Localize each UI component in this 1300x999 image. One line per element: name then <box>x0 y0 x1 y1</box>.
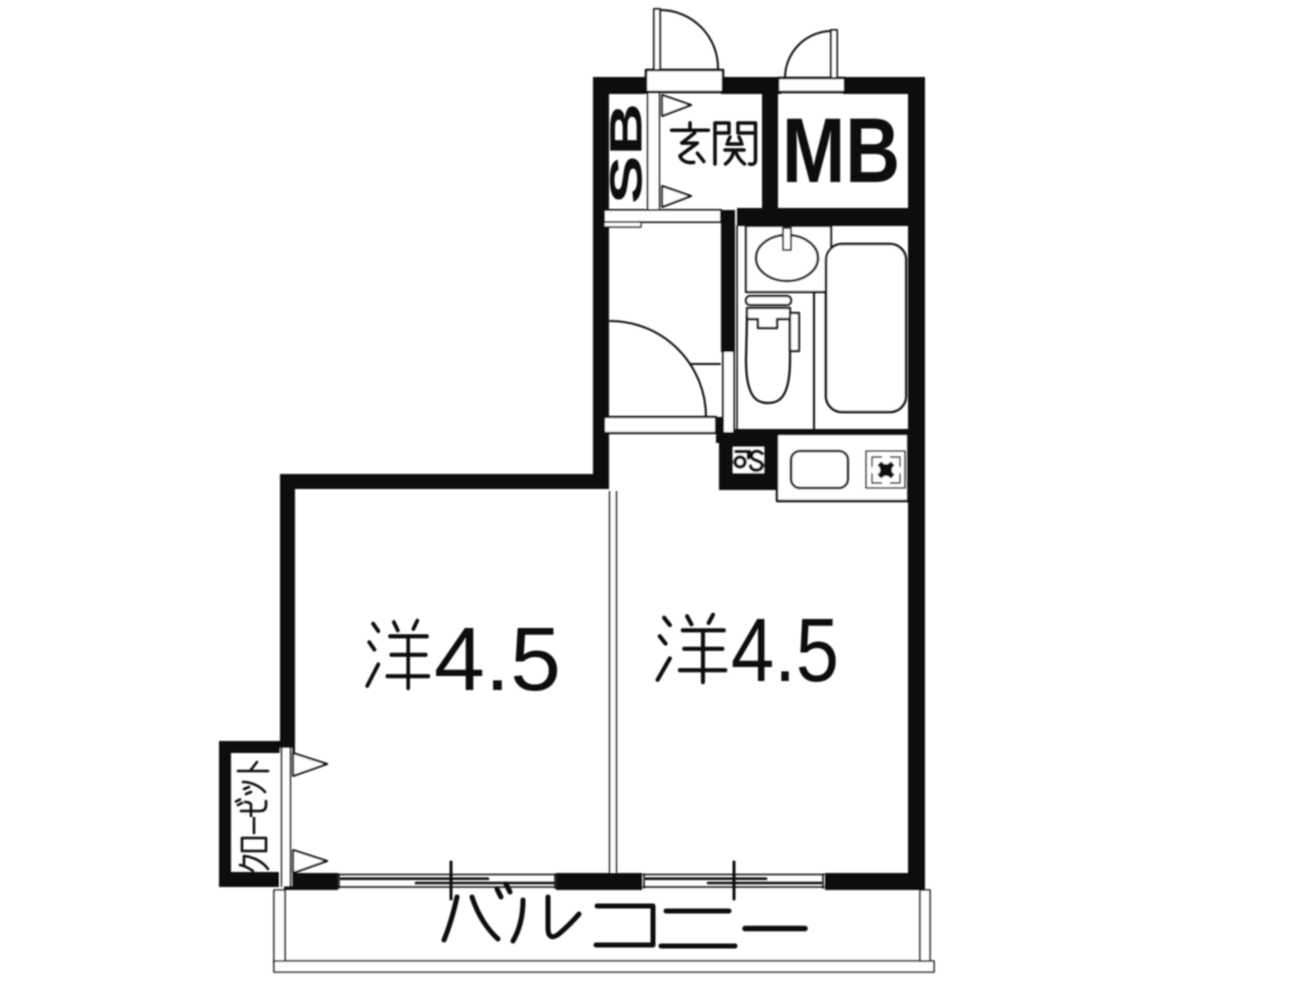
svg-text:SB: SB <box>601 103 652 204</box>
svg-text:4.5: 4.5 <box>731 601 839 701</box>
svg-text:4.5: 4.5 <box>434 610 561 710</box>
svg-text:MB: MB <box>782 100 900 202</box>
